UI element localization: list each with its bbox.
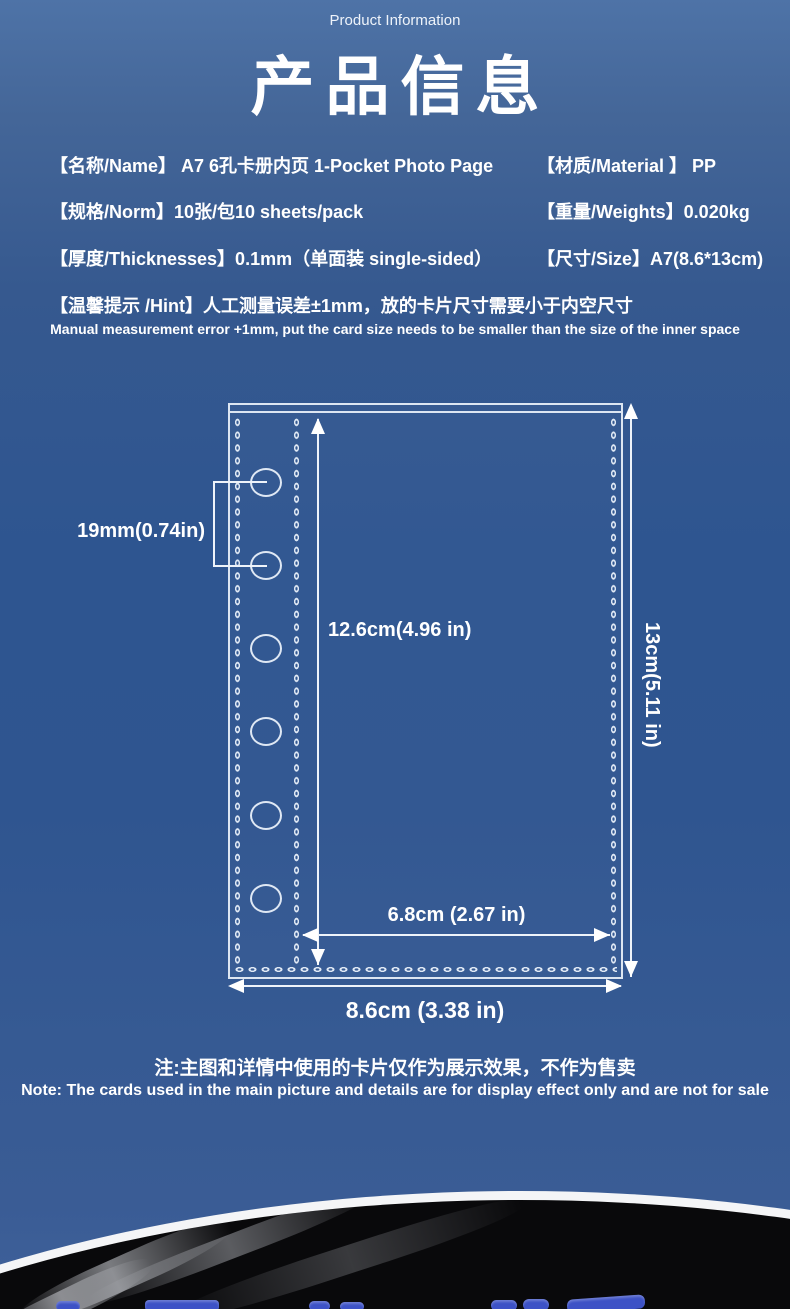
arrowhead-up-icon [311,418,325,434]
inner-height-dim-line [317,419,319,965]
arrowhead-left-icon [228,979,244,993]
binder-hole-5 [250,801,282,830]
spec-hint-cn: 【温馨提示 /Hint】人工测量误差±1mm，放的卡片尺寸需要小于内空尺寸 [50,292,633,318]
spec-norm: 【规格/Norm】10张/包10 sheets/pack [50,198,363,224]
cutoff-blue-text [145,1300,219,1309]
hole-spacing-bracket-vertical [213,481,215,567]
outer-width-dim-line [230,985,621,987]
spec-thickness: 【厚度/Thicknesses】0.1mm（单面装 single-sided） [50,245,492,271]
hole-spacing-label: 19mm(0.74in) [40,520,205,543]
arrowhead-right-icon [594,928,610,942]
cutoff-blue-text [491,1300,517,1309]
stitch-row-bottom [233,966,617,973]
arrowhead-right-icon [606,979,622,993]
arrowhead-up-icon [624,403,638,419]
inner-width-dim-line [303,934,610,936]
outer-width-label: 8.6cm (3.38 in) [228,997,622,1024]
spec-weights: 【重量/Weights】0.020kg [537,198,750,224]
spec-name: 【名称/Name】 A7 6孔卡册内页 1-Pocket Photo Page [50,152,493,178]
hole-spacing-bracket-bottom [213,565,267,567]
hole-spacing-bracket-top [213,481,267,483]
photo-page-outline [228,403,623,979]
binder-hole-4 [250,717,282,746]
stitch-column-left-1 [234,416,241,966]
spec-size: 【尺寸/Size】A7(8.6*13cm) [537,245,763,271]
outer-height-dim-line [630,405,632,977]
black-disc [0,1200,790,1309]
inner-width-label: 6.8cm (2.67 in) [330,904,583,927]
spec-hint-en: Manual measurement error +1mm, put the c… [0,321,790,337]
cutoff-blue-text [56,1301,80,1309]
arrowhead-down-icon [624,961,638,977]
arrowhead-left-icon [302,928,318,942]
note-en: Note: The cards used in the main picture… [0,1082,790,1100]
spec-material: 【材质/Material 】 PP [537,152,716,178]
subtitle-en: Product Information [0,12,790,29]
top-seam-line [230,411,621,413]
outer-height-label: 13cm(5.11 in) [640,622,663,748]
inner-height-label: 12.6cm(4.96 in) [328,619,471,642]
stitch-column-left-2 [293,416,300,966]
binder-hole-6 [250,884,282,913]
arrowhead-down-icon [311,949,325,965]
stitch-column-right [610,416,617,966]
cutoff-blue-text [309,1301,330,1309]
binder-hole-3 [250,634,282,663]
note-cn: 注:主图和详情中使用的卡片仅作为展示效果，不作为售卖 [0,1053,790,1080]
page-title: 产品信息 [0,36,790,128]
product-info-sheet: Product Information 产品信息 【名称/Name】 A7 6孔… [0,0,790,1309]
cutoff-blue-text [523,1299,549,1309]
cutoff-blue-text [340,1302,364,1309]
